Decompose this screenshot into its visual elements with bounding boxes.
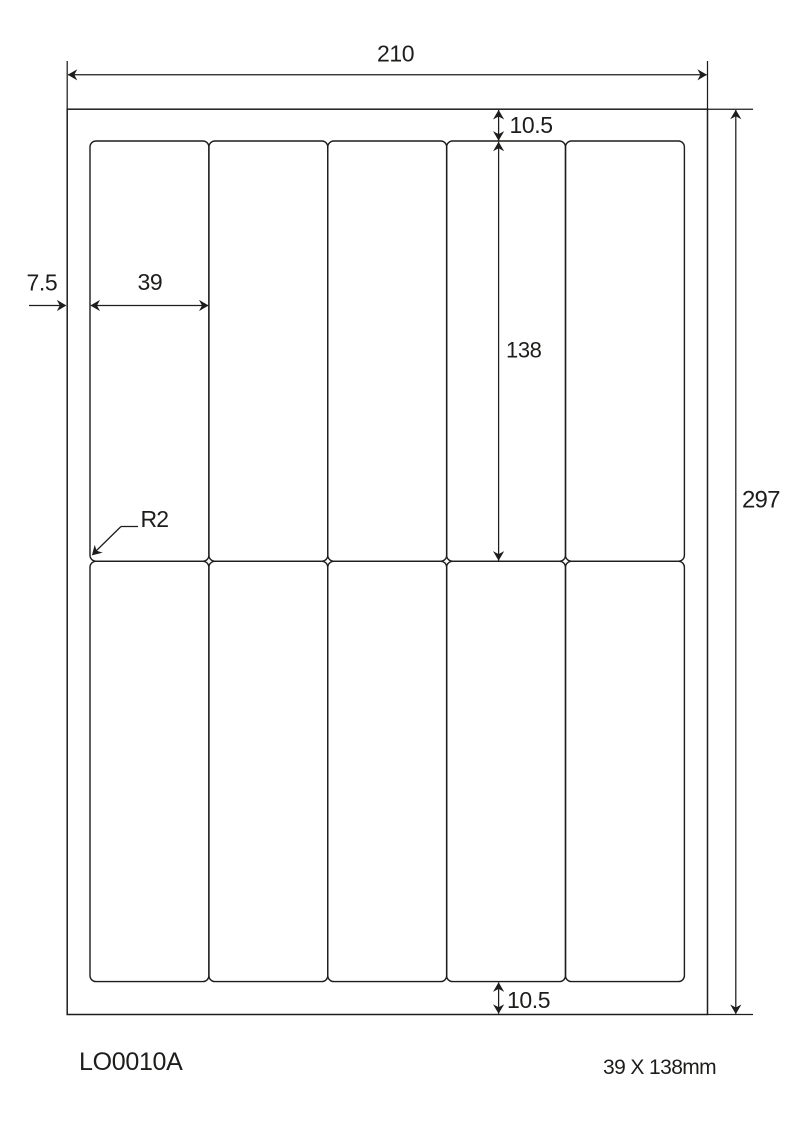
svg-text:297: 297 bbox=[742, 487, 780, 514]
svg-text:R2: R2 bbox=[141, 506, 169, 532]
svg-text:10.5: 10.5 bbox=[510, 112, 553, 138]
svg-text:7.5: 7.5 bbox=[27, 270, 58, 296]
svg-text:138: 138 bbox=[506, 338, 542, 363]
svg-text:10.5: 10.5 bbox=[507, 987, 550, 1013]
svg-text:210: 210 bbox=[377, 41, 414, 67]
svg-text:39: 39 bbox=[138, 269, 163, 295]
svg-text:39 X 138mm: 39 X 138mm bbox=[603, 1056, 716, 1079]
svg-text:LO0010A: LO0010A bbox=[79, 1048, 183, 1076]
